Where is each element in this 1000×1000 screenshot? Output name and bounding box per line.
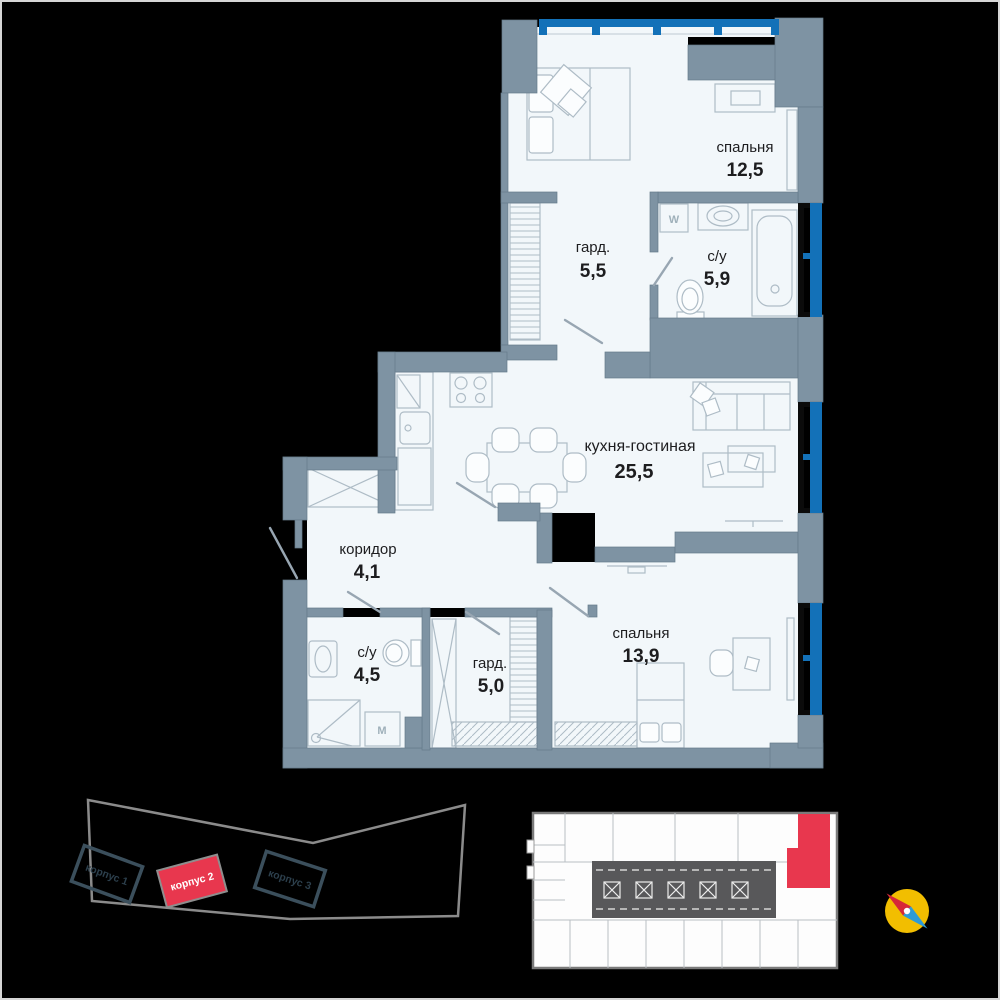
closet-hatched-3 xyxy=(452,722,537,746)
room-label-wardrobe-1: гард. xyxy=(576,239,610,256)
washer-m-label: M xyxy=(377,725,386,737)
core-block xyxy=(592,861,776,918)
washer-w-label: W xyxy=(669,214,680,226)
room-area-bedroom-2: 13,9 xyxy=(623,646,660,667)
floorplan-scene: W xyxy=(0,0,1000,1000)
closet-hatched-2 xyxy=(510,617,537,722)
floor-overview xyxy=(527,813,837,968)
room-area-corridor: 4,1 xyxy=(354,562,381,583)
screenshot-canvas: W xyxy=(0,0,1000,1000)
toilet-bathroom-2 xyxy=(383,640,421,666)
toilet-bathroom-1 xyxy=(677,280,704,320)
room-label-bathroom-2: с/у xyxy=(357,644,377,661)
room-label-bedroom-2: спальня xyxy=(613,625,670,642)
room-area-wardrobe-1: 5,5 xyxy=(580,261,607,282)
room-label-bathroom-1: с/у xyxy=(707,248,727,265)
window-right-3 xyxy=(798,603,822,715)
window-right-1 xyxy=(798,203,822,317)
room-area-bathroom-1: 5,9 xyxy=(704,269,730,290)
room-area-kitchen-living: 25,5 xyxy=(615,461,654,483)
window-right-2 xyxy=(798,402,822,513)
compass-icon xyxy=(885,889,929,933)
room-area-wardrobe-2: 5,0 xyxy=(478,676,504,697)
room-label-corridor: коридор xyxy=(339,541,396,558)
room-area-bedroom-1: 12,5 xyxy=(727,160,764,181)
room-label-bedroom-1: спальня xyxy=(717,139,774,156)
room-area-bathroom-2: 4,5 xyxy=(354,665,381,686)
room-label-wardrobe-2: гард. xyxy=(473,655,507,672)
closet-hatched xyxy=(510,203,540,340)
room-label-kitchen-living: кухня-гостиная xyxy=(584,438,695,455)
closet-hatched-4 xyxy=(555,722,637,746)
